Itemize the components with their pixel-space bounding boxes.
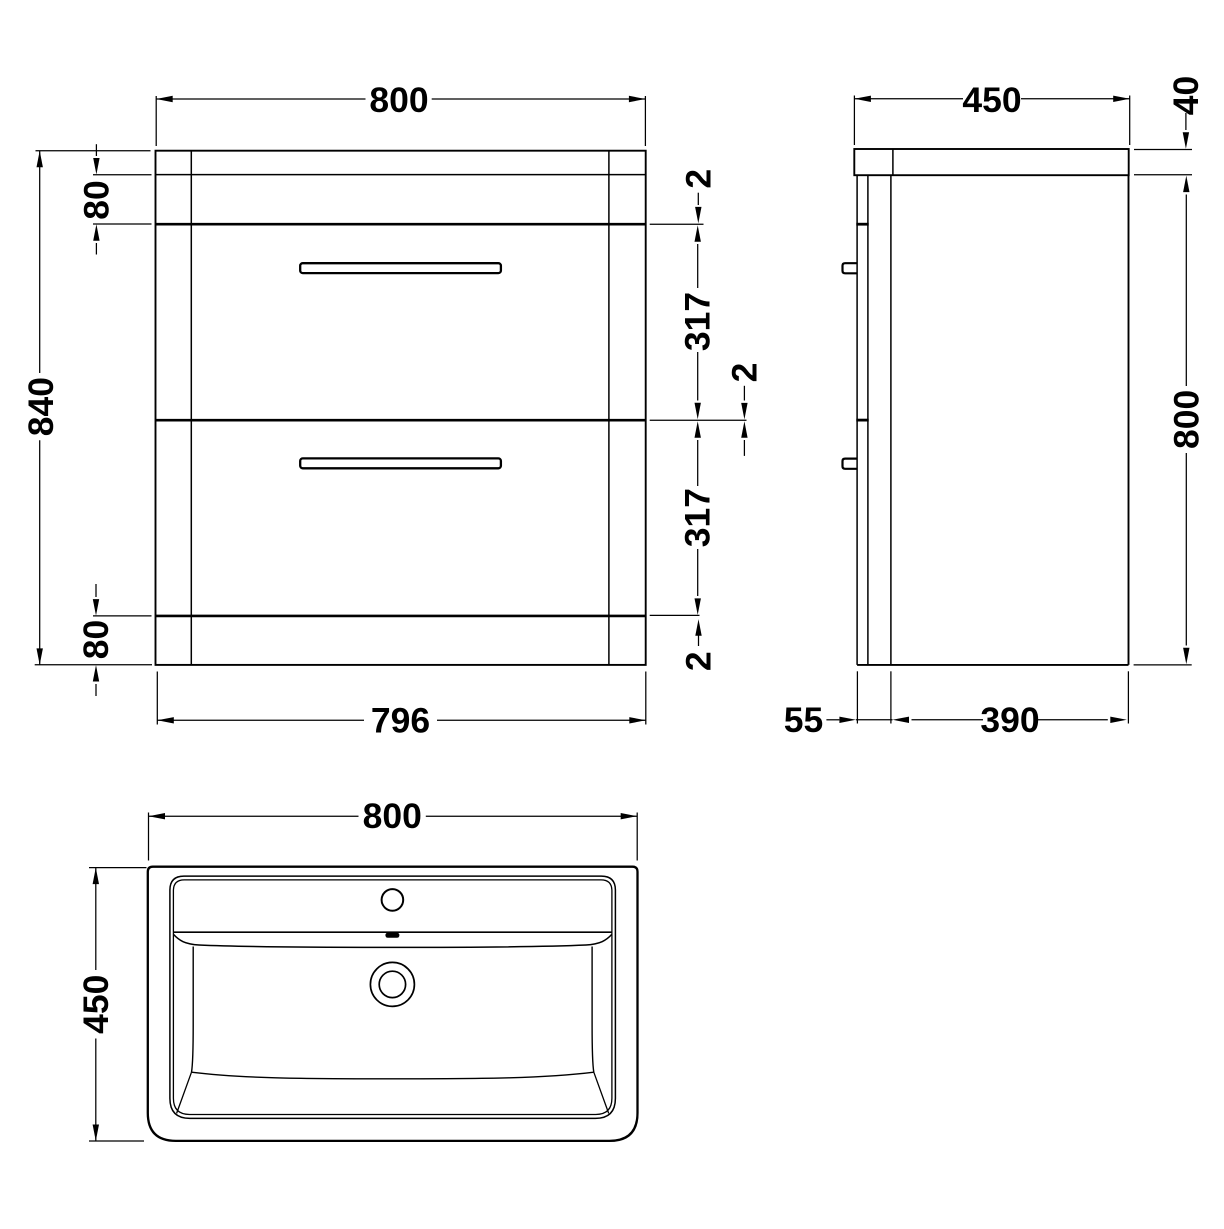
svg-text:55: 55 [784, 700, 824, 740]
svg-text:390: 390 [980, 700, 1039, 740]
svg-text:840: 840 [21, 377, 61, 436]
svg-text:450: 450 [962, 80, 1021, 120]
svg-text:796: 796 [371, 700, 430, 740]
svg-text:800: 800 [1166, 390, 1206, 449]
svg-text:317: 317 [678, 488, 718, 547]
svg-text:80: 80 [76, 620, 116, 660]
svg-text:317: 317 [678, 292, 718, 351]
svg-text:80: 80 [77, 180, 117, 220]
svg-text:450: 450 [76, 975, 116, 1034]
svg-text:2: 2 [678, 651, 718, 671]
svg-text:800: 800 [363, 796, 422, 836]
svg-text:40: 40 [1166, 76, 1206, 116]
svg-text:2: 2 [678, 169, 718, 189]
svg-text:2: 2 [724, 363, 764, 383]
svg-text:800: 800 [369, 80, 428, 120]
